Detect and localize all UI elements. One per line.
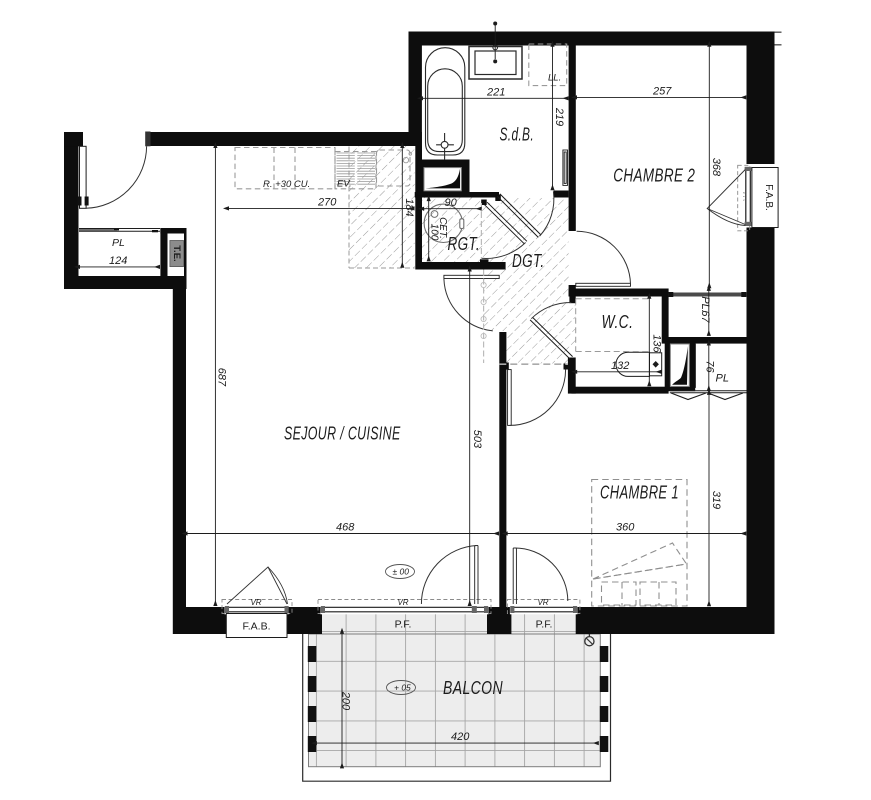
svg-text:VR: VR (397, 598, 408, 607)
svg-text:R. +30 CU.: R. +30 CU. (263, 179, 310, 190)
svg-text:SEJOUR / CUISINE: SEJOUR / CUISINE (284, 424, 401, 444)
svg-text:360: 360 (616, 522, 635, 534)
svg-text:VR: VR (537, 598, 548, 607)
svg-text:687: 687 (215, 368, 227, 387)
svg-text:76: 76 (704, 360, 716, 373)
svg-text:P.F.: P.F. (395, 619, 412, 631)
svg-text:319: 319 (710, 491, 722, 509)
svg-text:EV.: EV. (337, 179, 352, 190)
svg-text:F.A.B.: F.A.B. (242, 621, 270, 633)
svg-text:100: 100 (429, 224, 440, 241)
svg-text:T.E.: T.E. (171, 245, 182, 261)
svg-text:PL: PL (716, 373, 729, 385)
svg-text:W.C.: W.C. (602, 312, 634, 332)
svg-text:368: 368 (710, 158, 722, 177)
svg-text:PL: PL (112, 237, 125, 249)
svg-text:P.F.: P.F. (536, 619, 553, 631)
svg-text:BALCON: BALCON (443, 678, 503, 698)
svg-text:468: 468 (336, 522, 355, 534)
svg-text:CHAMBRE 2: CHAMBRE 2 (613, 166, 695, 186)
svg-text:136: 136 (651, 334, 663, 353)
svg-text:CHAMBRE 1: CHAMBRE 1 (600, 483, 679, 503)
svg-text:503: 503 (471, 430, 483, 449)
svg-text:S.d.B.: S.d.B. (500, 125, 535, 145)
svg-text:200: 200 (340, 691, 352, 711)
svg-text:LL.: LL. (548, 73, 561, 84)
svg-text:+ 05: + 05 (394, 683, 411, 693)
svg-text:221: 221 (486, 87, 505, 99)
svg-text:184: 184 (403, 198, 415, 216)
svg-text:± 00: ± 00 (393, 567, 410, 577)
svg-text:270: 270 (317, 197, 337, 209)
svg-text:DGT.: DGT. (512, 251, 545, 271)
svg-text:RGT.: RGT. (448, 234, 481, 254)
svg-text:420: 420 (451, 731, 470, 743)
svg-text:90: 90 (445, 197, 458, 209)
svg-text:132: 132 (611, 360, 629, 372)
svg-text:124: 124 (109, 255, 127, 267)
svg-text:67: 67 (699, 310, 711, 323)
svg-text:257: 257 (652, 86, 672, 98)
svg-text:VR: VR (250, 598, 261, 607)
svg-text:F.A.B.: F.A.B. (763, 184, 774, 211)
svg-text:219: 219 (553, 107, 565, 126)
